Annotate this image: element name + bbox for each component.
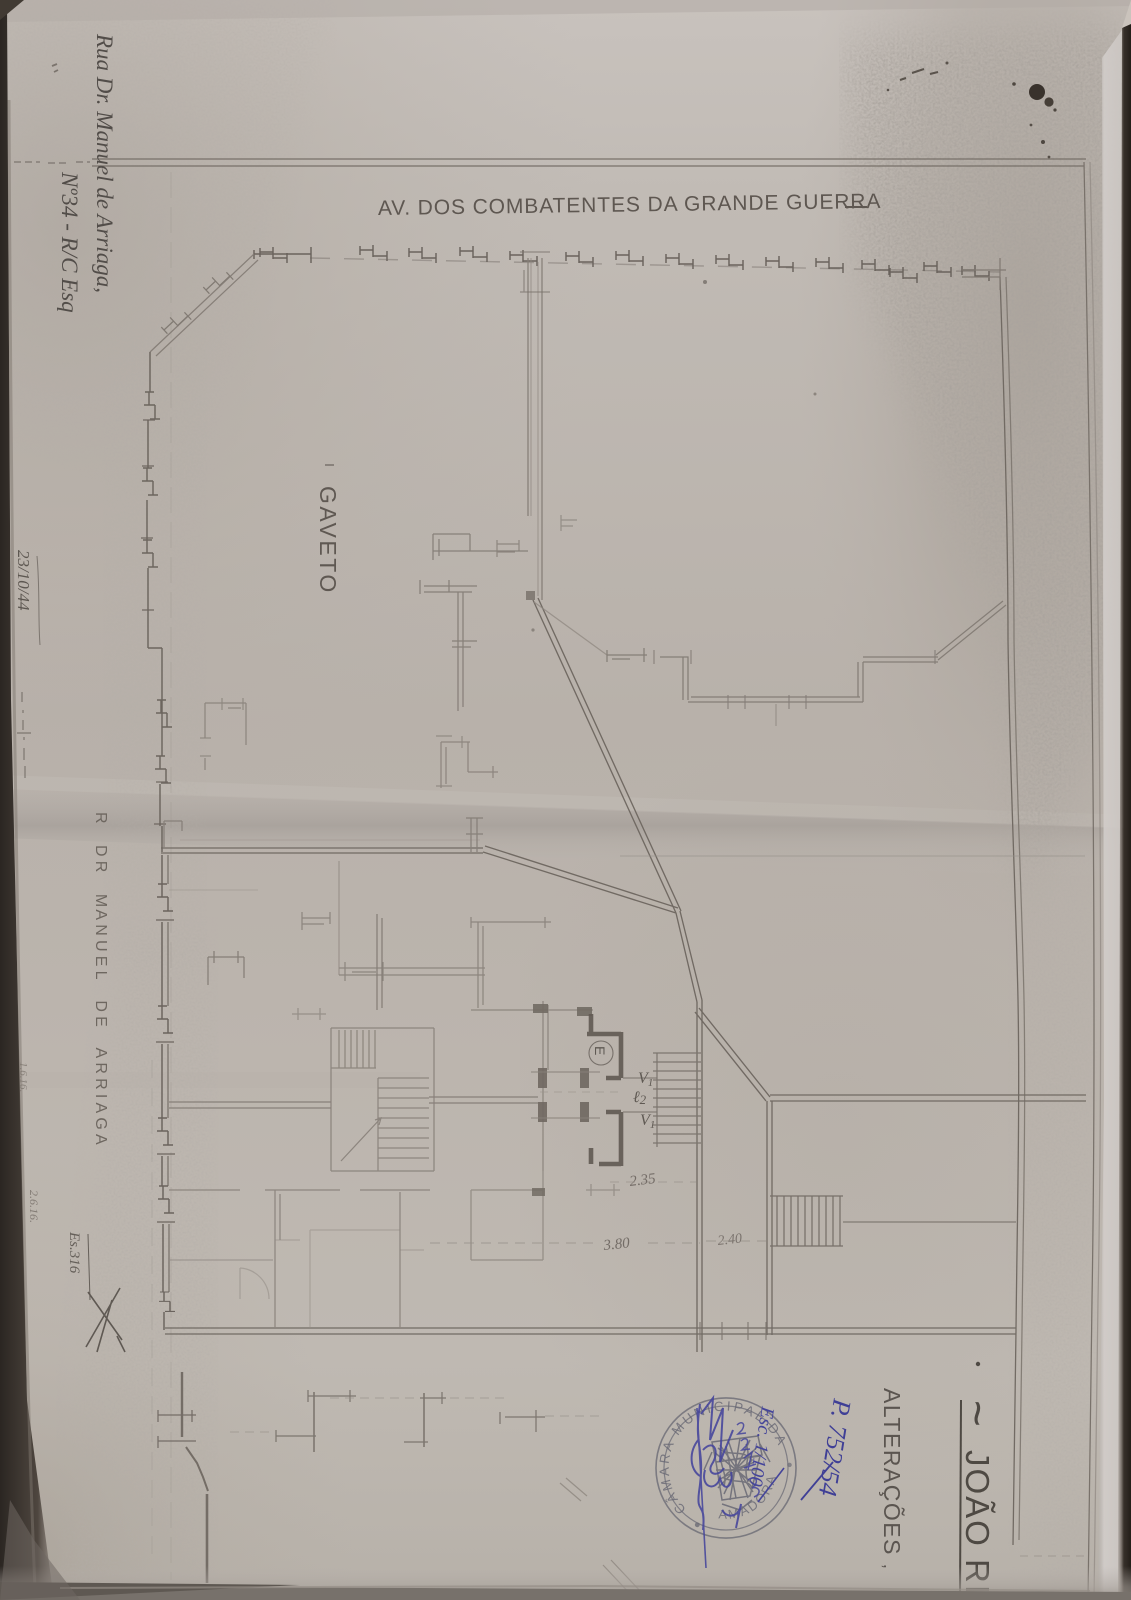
svg-text:3.80: 3.80 [602,1235,631,1254]
svg-text:Es.316: Es.316 [66,1231,82,1274]
svg-text:23/10/44: 23/10/44 [14,550,33,611]
svg-text:ALTERAÇÕES ,: ALTERAÇÕES , [879,1388,906,1570]
svg-text:2.6.16.: 2.6.16. [27,1190,41,1223]
svg-text:2.40: 2.40 [717,1231,743,1248]
svg-text:E: E [592,1046,608,1055]
svg-text:GAVETO: GAVETO [315,486,341,595]
svg-text:2.35: 2.35 [629,1171,658,1190]
svg-text:~: ~ [952,1400,1004,1427]
svg-text:R DR MANUEL DE ARRIAGA: R DR MANUEL DE ARRIAGA [92,812,109,1149]
svg-text:Rua Dr. Manuel de Arriaga,: Rua Dr. Manuel de Arriaga, [92,33,117,293]
svg-text:ℓ2: ℓ2 [633,1089,647,1107]
svg-text:Nº34 - R/C Esq: Nº34 - R/C Esq [57,171,82,313]
